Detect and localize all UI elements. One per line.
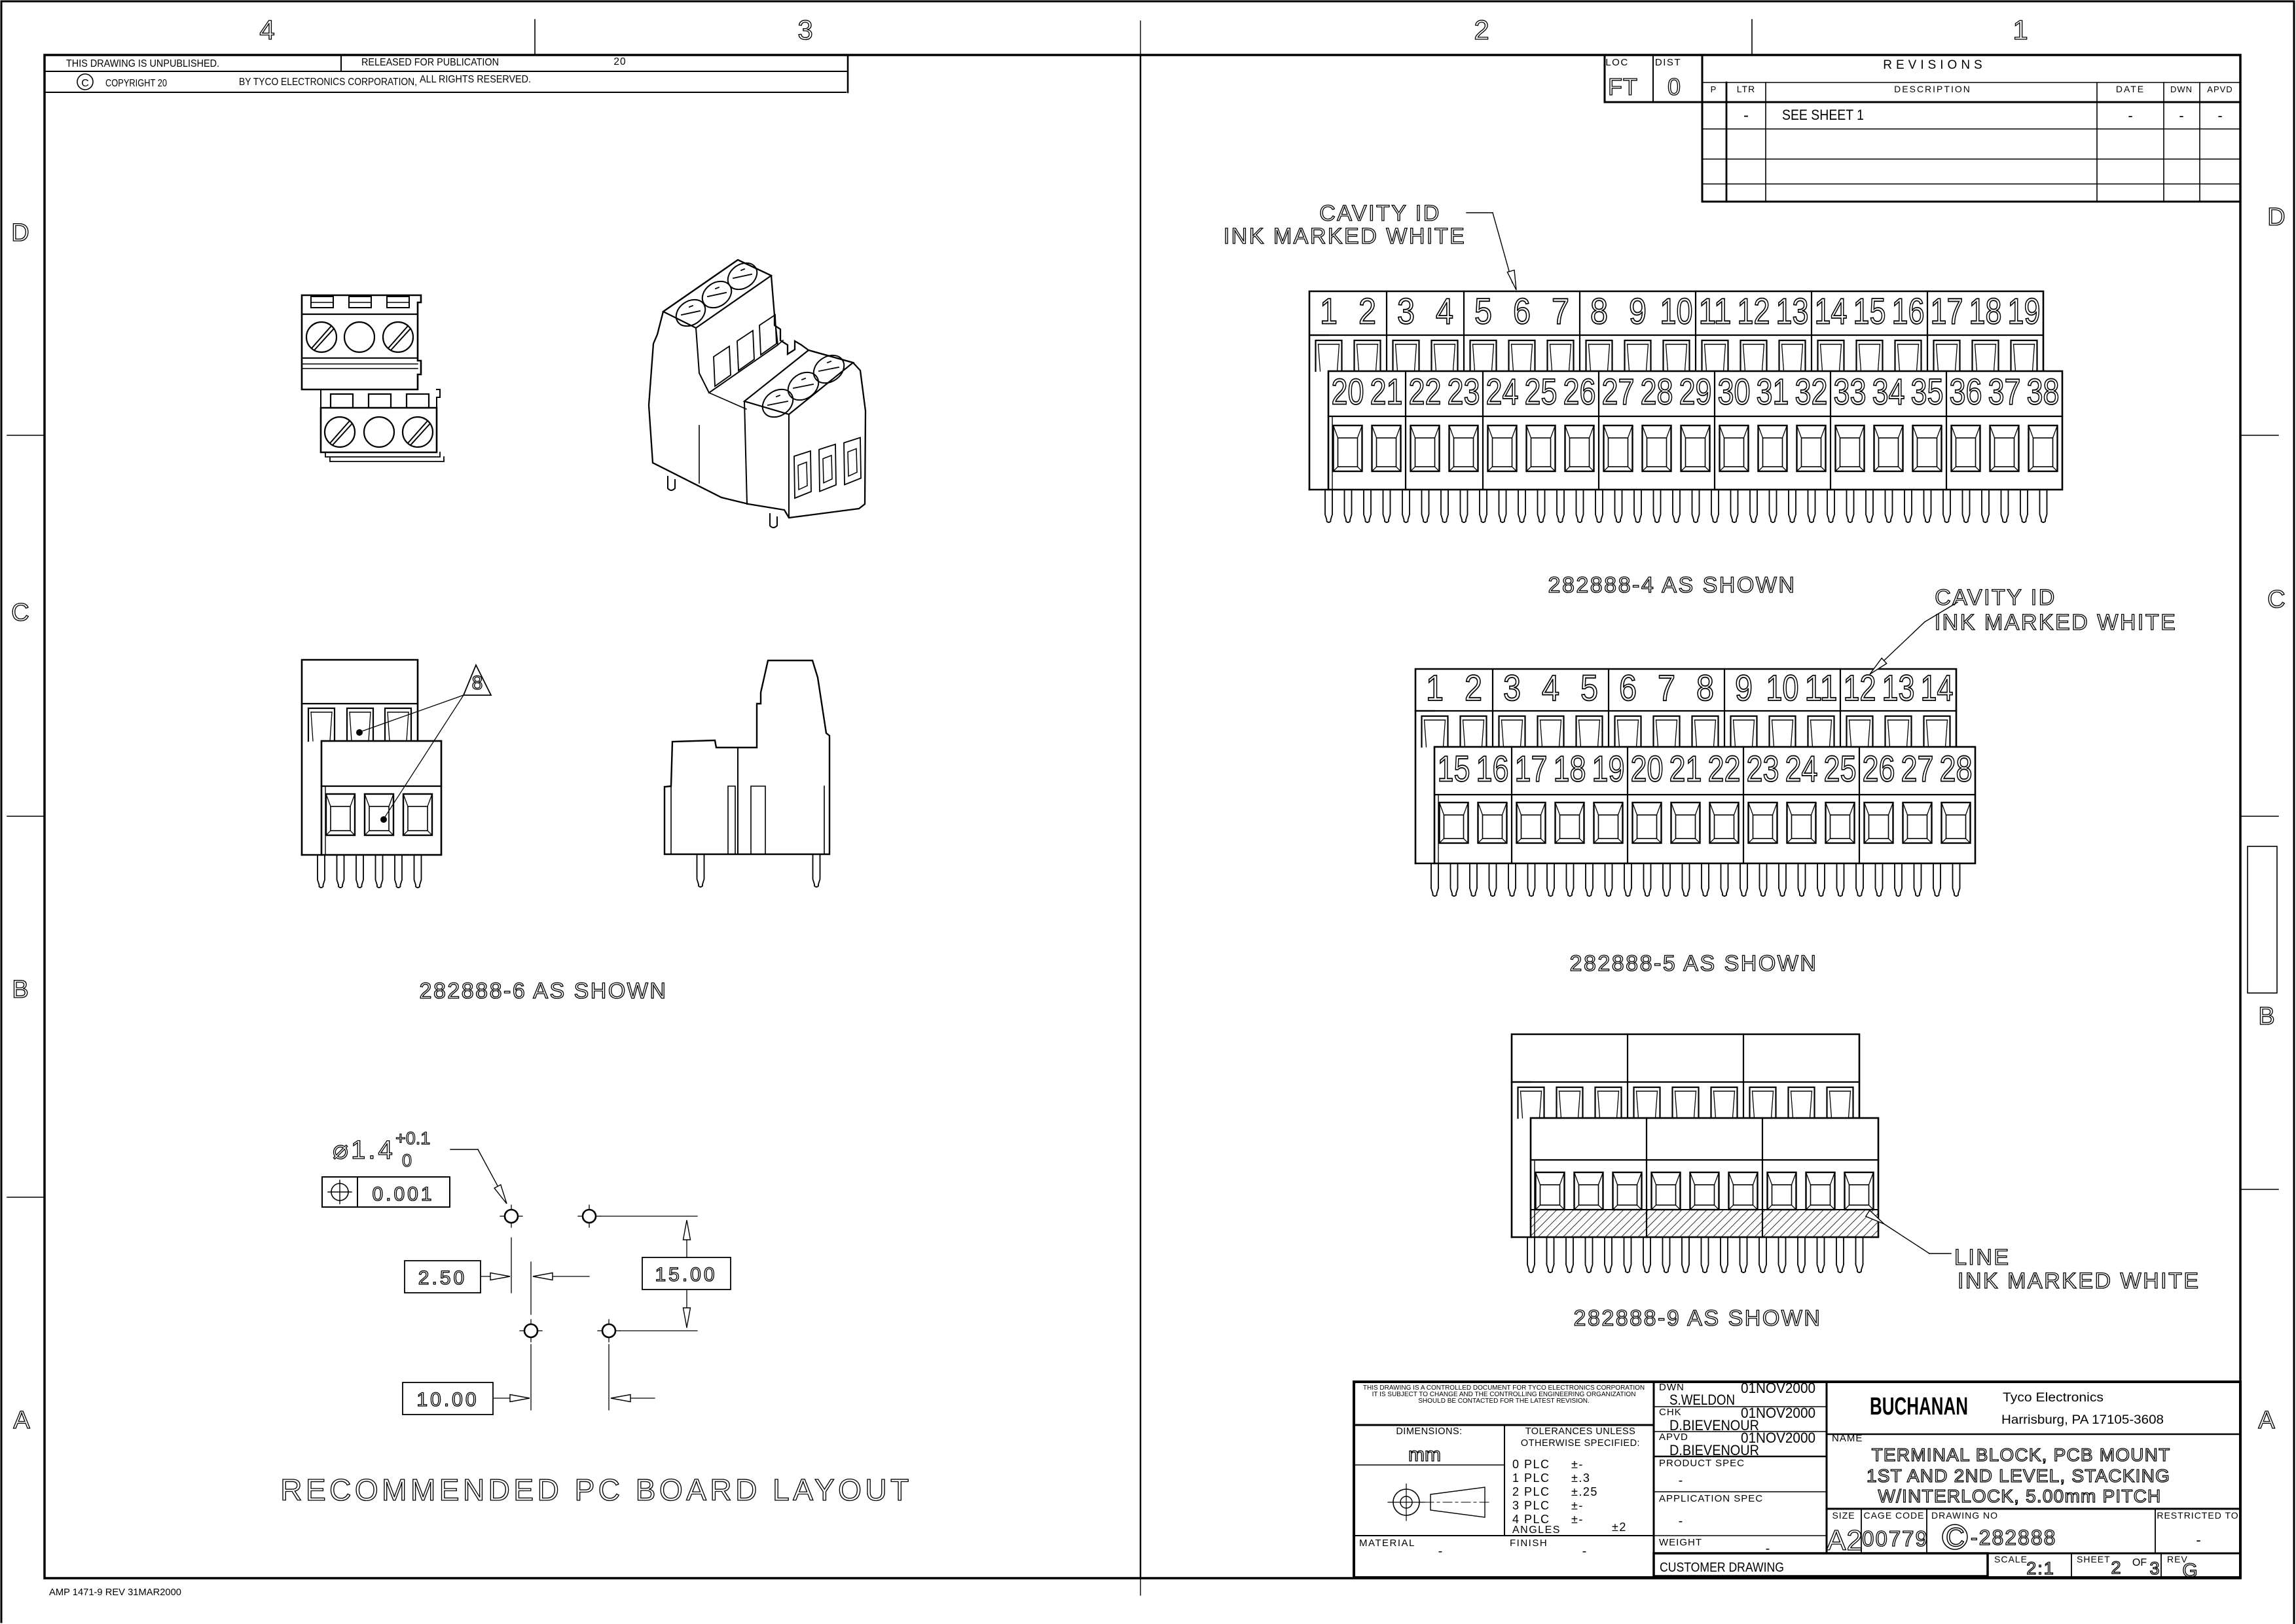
svg-text:RECOMMENDED PC BOARD LAYOUT: RECOMMENDED PC BOARD LAYOUT xyxy=(280,1473,913,1507)
svg-text:PRODUCT SPEC: PRODUCT SPEC xyxy=(1659,1458,1745,1469)
svg-text:13: 13 xyxy=(1882,667,1915,708)
svg-text:-: - xyxy=(1679,1473,1683,1488)
svg-text:21: 21 xyxy=(1370,371,1403,412)
svg-text:2: 2 xyxy=(1358,291,1376,332)
svg-text:THIS DRAWING IS UNPUBLISHED.: THIS DRAWING IS UNPUBLISHED. xyxy=(66,58,219,69)
svg-text:18: 18 xyxy=(1554,748,1586,789)
svg-text:INK MARKED WHITE: INK MARKED WHITE xyxy=(1224,224,1467,249)
svg-text:LTR: LTR xyxy=(1737,84,1755,94)
svg-text:-: - xyxy=(2179,107,2183,124)
svg-text:ALL RIGHTS RESERVED.: ALL RIGHTS RESERVED. xyxy=(420,74,531,85)
svg-text:APPLICATION SPEC: APPLICATION SPEC xyxy=(1659,1493,1763,1504)
svg-text:0 PLC: 0 PLC xyxy=(1512,1458,1550,1471)
svg-text:6: 6 xyxy=(1619,667,1637,708)
svg-text:8: 8 xyxy=(472,672,483,694)
svg-text:10: 10 xyxy=(1660,291,1693,332)
svg-text:SHEET: SHEET xyxy=(2077,1554,2111,1564)
svg-text:11: 11 xyxy=(1699,291,1732,332)
svg-text:APVD: APVD xyxy=(2207,84,2232,94)
svg-text:W/INTERLOCK, 5.00mm PITCH: W/INTERLOCK, 5.00mm PITCH xyxy=(1878,1486,2162,1506)
svg-text:±-: ±- xyxy=(1571,1513,1584,1526)
svg-text:±.3: ±.3 xyxy=(1571,1471,1590,1485)
svg-text:INK MARKED WHITE: INK MARKED WHITE xyxy=(1935,610,2178,635)
svg-text:10.00: 10.00 xyxy=(416,1389,479,1411)
svg-text:9: 9 xyxy=(1629,291,1647,332)
svg-text:LOC: LOC xyxy=(1605,57,1628,68)
svg-text:1: 1 xyxy=(1320,291,1338,332)
svg-text:SHOULD BE CONTACTED FOR THE LA: SHOULD BE CONTACTED FOR THE LATEST REVIS… xyxy=(1418,1398,1590,1405)
svg-text:28: 28 xyxy=(1940,748,1973,789)
svg-text:17: 17 xyxy=(1515,748,1548,789)
svg-text:8: 8 xyxy=(1590,291,1608,332)
svg-text:D: D xyxy=(2267,204,2285,231)
svg-text:2 PLC: 2 PLC xyxy=(1512,1485,1550,1498)
svg-text:6: 6 xyxy=(1513,291,1531,332)
svg-text:INK MARKED WHITE: INK MARKED WHITE xyxy=(1958,1269,2200,1293)
svg-text:22: 22 xyxy=(1409,371,1442,412)
svg-text:RESTRICTED TO: RESTRICTED TO xyxy=(2157,1510,2238,1521)
svg-text:10: 10 xyxy=(1766,667,1799,708)
svg-text:-: - xyxy=(1582,1544,1587,1559)
svg-text:AMP 1471-9 REV 31MAR2000: AMP 1471-9 REV 31MAR2000 xyxy=(49,1587,181,1598)
svg-text:5: 5 xyxy=(1474,291,1492,332)
svg-text:26: 26 xyxy=(1863,748,1895,789)
svg-text:SEE SHEET 1: SEE SHEET 1 xyxy=(1782,107,1864,123)
svg-text:11: 11 xyxy=(1805,667,1838,708)
svg-text:A: A xyxy=(13,1407,30,1434)
svg-text:20: 20 xyxy=(613,56,626,67)
svg-text:2: 2 xyxy=(1465,667,1482,708)
svg-text:SIZE: SIZE xyxy=(1832,1510,1855,1521)
svg-text:4: 4 xyxy=(1436,291,1453,332)
svg-text:18: 18 xyxy=(1969,291,2002,332)
svg-text:15.00: 15.00 xyxy=(655,1264,717,1286)
svg-text:B: B xyxy=(2258,1003,2274,1030)
svg-text:1: 1 xyxy=(2013,14,2028,45)
svg-text:15: 15 xyxy=(1853,291,1886,332)
svg-text:1ST AND 2ND LEVEL, STACKING: 1ST AND 2ND LEVEL, STACKING xyxy=(1867,1466,2170,1486)
svg-text:00779: 00779 xyxy=(1862,1526,1929,1551)
svg-text:282888-5 AS SHOWN: 282888-5 AS SHOWN xyxy=(1570,951,1818,976)
svg-text:2: 2 xyxy=(1474,14,1489,45)
svg-text:CAGE CODE: CAGE CODE xyxy=(1863,1510,1924,1521)
svg-text:DWN: DWN xyxy=(2170,84,2193,94)
svg-text:282888-6 AS SHOWN: 282888-6 AS SHOWN xyxy=(420,979,668,1003)
svg-text:5: 5 xyxy=(1580,667,1598,708)
svg-text:35: 35 xyxy=(1911,371,1944,412)
svg-text:BY TYCO ELECTRONICS CORPORATIO: BY TYCO ELECTRONICS CORPORATION, xyxy=(239,77,417,88)
svg-text:7: 7 xyxy=(1552,291,1569,332)
svg-text:D: D xyxy=(11,219,29,247)
svg-text:37: 37 xyxy=(1988,371,2021,412)
svg-text:21: 21 xyxy=(1669,748,1702,789)
svg-text:20: 20 xyxy=(1332,371,1364,412)
svg-text:-: - xyxy=(2217,107,2222,124)
svg-text:SCALE: SCALE xyxy=(1994,1554,2028,1564)
svg-text:±.25: ±.25 xyxy=(1571,1485,1598,1498)
svg-text:01NOV2000: 01NOV2000 xyxy=(1741,1380,1815,1396)
svg-text:G: G xyxy=(2182,1560,2197,1581)
svg-text:DIST: DIST xyxy=(1655,57,1681,68)
svg-text:COPYRIGHT 20: COPYRIGHT 20 xyxy=(105,78,167,89)
svg-text:282888-9 AS SHOWN: 282888-9 AS SHOWN xyxy=(1574,1306,1822,1331)
svg-text:13: 13 xyxy=(1776,291,1809,332)
svg-text:BUCHANAN: BUCHANAN xyxy=(1870,1393,1968,1420)
svg-text:⌀1.4: ⌀1.4 xyxy=(333,1136,395,1164)
svg-text:3: 3 xyxy=(2149,1559,2159,1578)
svg-text:25: 25 xyxy=(1824,748,1857,789)
svg-text:27: 27 xyxy=(1901,748,1934,789)
svg-text:TERMINAL BLOCK, PCB MOUNT: TERMINAL BLOCK, PCB MOUNT xyxy=(1872,1445,2171,1465)
svg-text:7: 7 xyxy=(1658,667,1675,708)
svg-text:23: 23 xyxy=(1747,748,1779,789)
svg-text:36: 36 xyxy=(1950,371,1982,412)
svg-text:mm: mm xyxy=(1408,1444,1441,1466)
svg-text:OF: OF xyxy=(2132,1557,2147,1568)
svg-text:±2: ±2 xyxy=(1612,1521,1627,1534)
svg-text:38: 38 xyxy=(2027,371,2060,412)
svg-text:FT: FT xyxy=(1608,73,1638,100)
svg-text:DIMENSIONS:: DIMENSIONS: xyxy=(1396,1426,1462,1437)
svg-text:ANGLES: ANGLES xyxy=(1512,1525,1561,1536)
svg-text:C: C xyxy=(11,599,29,626)
svg-text:DATE: DATE xyxy=(2116,84,2145,94)
svg-text:DRAWING NO: DRAWING NO xyxy=(1931,1510,1998,1521)
svg-text:+0.1: +0.1 xyxy=(395,1128,430,1148)
svg-text:APVD: APVD xyxy=(1659,1432,1688,1443)
svg-text:Tyco Electronics: Tyco Electronics xyxy=(2003,1391,2104,1405)
svg-text:-: - xyxy=(1438,1544,1443,1559)
svg-text:DESCRIPTION: DESCRIPTION xyxy=(1894,84,1971,94)
svg-text:28: 28 xyxy=(1641,371,1673,412)
svg-text:LINE: LINE xyxy=(1954,1245,2011,1270)
svg-text:CUSTOMER DRAWING: CUSTOMER DRAWING xyxy=(1660,1561,1784,1575)
svg-text:FINISH: FINISH xyxy=(1510,1538,1548,1549)
svg-text:2:1: 2:1 xyxy=(2026,1559,2055,1578)
svg-text:3: 3 xyxy=(1397,291,1415,332)
svg-text:34: 34 xyxy=(1872,371,1905,412)
svg-text:19: 19 xyxy=(2008,291,2041,332)
svg-text:A2: A2 xyxy=(1827,1525,1863,1557)
svg-text:0: 0 xyxy=(402,1151,412,1170)
svg-text:15: 15 xyxy=(1438,748,1470,789)
svg-text:-: - xyxy=(2196,1532,2200,1548)
svg-text:12: 12 xyxy=(1738,291,1770,332)
svg-text:NAME: NAME xyxy=(1832,1433,1863,1444)
svg-text:2.50: 2.50 xyxy=(418,1267,467,1289)
svg-text:CAVITY ID: CAVITY ID xyxy=(1935,585,2056,610)
svg-text:C: C xyxy=(2267,586,2285,613)
svg-text:C: C xyxy=(81,78,89,89)
svg-text:WEIGHT: WEIGHT xyxy=(1659,1537,1702,1548)
svg-text:B: B xyxy=(12,976,28,1003)
svg-text:1 PLC: 1 PLC xyxy=(1512,1471,1550,1485)
svg-text:A: A xyxy=(2258,1407,2275,1434)
svg-text:24: 24 xyxy=(1486,371,1519,412)
svg-text:14: 14 xyxy=(1921,667,1954,708)
svg-text:REVISIONS: REVISIONS xyxy=(1883,58,1986,72)
svg-text:22: 22 xyxy=(1708,748,1741,789)
svg-text:17: 17 xyxy=(1931,291,1963,332)
svg-text:±-: ±- xyxy=(1571,1499,1584,1512)
svg-text:TOLERANCES UNLESS: TOLERANCES UNLESS xyxy=(1525,1426,1636,1437)
svg-text:MATERIAL: MATERIAL xyxy=(1359,1538,1415,1549)
svg-text:31: 31 xyxy=(1757,371,1789,412)
svg-text:-: - xyxy=(1743,107,1749,124)
svg-text:S.WELDON: S.WELDON xyxy=(1669,1392,1735,1408)
svg-text:CAVITY ID: CAVITY ID xyxy=(1319,201,1441,226)
svg-text:14: 14 xyxy=(1815,291,1848,332)
svg-text:16: 16 xyxy=(1892,291,1925,332)
svg-text:3: 3 xyxy=(797,14,812,45)
svg-text:4: 4 xyxy=(259,14,274,45)
svg-text:0.001: 0.001 xyxy=(372,1183,434,1205)
svg-text:4: 4 xyxy=(1542,667,1559,708)
svg-text:33: 33 xyxy=(1834,371,1867,412)
svg-text:0: 0 xyxy=(1667,73,1681,100)
svg-text:Harrisburg, PA 17105-3608: Harrisburg, PA 17105-3608 xyxy=(2001,1413,2164,1427)
svg-text:8: 8 xyxy=(1696,667,1714,708)
svg-text:282888-4 AS SHOWN: 282888-4 AS SHOWN xyxy=(1548,573,1796,598)
svg-text:4 PLC: 4 PLC xyxy=(1512,1513,1550,1526)
svg-text:OTHERWISE SPECIFIED:: OTHERWISE SPECIFIED: xyxy=(1521,1438,1640,1449)
svg-text:CHK: CHK xyxy=(1659,1407,1682,1418)
svg-text:-282888: -282888 xyxy=(1971,1526,2056,1549)
svg-text:D.BIEVENOUR: D.BIEVENOUR xyxy=(1669,1442,1759,1458)
svg-text:-: - xyxy=(2128,107,2132,124)
svg-text:±-: ±- xyxy=(1571,1458,1584,1471)
svg-text:1: 1 xyxy=(1426,667,1444,708)
svg-text:P: P xyxy=(1711,84,1717,94)
svg-text:9: 9 xyxy=(1735,667,1753,708)
svg-text:20: 20 xyxy=(1631,748,1664,789)
svg-text:24: 24 xyxy=(1785,748,1818,789)
svg-text:32: 32 xyxy=(1795,371,1828,412)
svg-text:30: 30 xyxy=(1718,371,1751,412)
svg-text:25: 25 xyxy=(1525,371,1558,412)
svg-text:2: 2 xyxy=(2111,1558,2121,1578)
svg-text:-: - xyxy=(1679,1514,1683,1528)
svg-text:RELEASED FOR PUBLICATION: RELEASED FOR PUBLICATION xyxy=(361,57,499,68)
svg-text:3 PLC: 3 PLC xyxy=(1512,1499,1550,1512)
svg-text:19: 19 xyxy=(1592,748,1625,789)
svg-text:29: 29 xyxy=(1679,371,1712,412)
svg-text:16: 16 xyxy=(1476,748,1509,789)
svg-text:27: 27 xyxy=(1602,371,1635,412)
svg-text:3: 3 xyxy=(1503,667,1521,708)
svg-text:26: 26 xyxy=(1563,371,1596,412)
svg-text:23: 23 xyxy=(1448,371,1480,412)
